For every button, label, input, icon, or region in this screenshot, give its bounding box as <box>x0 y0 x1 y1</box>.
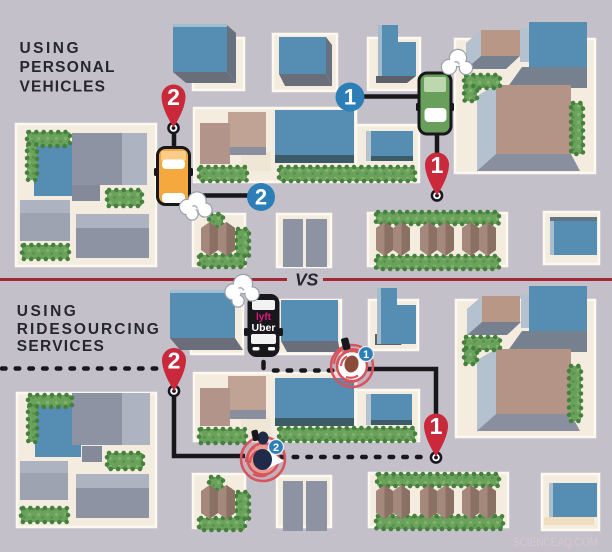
svg-text:VEHICLES: VEHICLES <box>20 79 106 96</box>
svg-text:lyft: lyft <box>256 312 272 323</box>
svg-text:1: 1 <box>363 349 369 361</box>
svg-text:2: 2 <box>255 185 267 210</box>
svg-text:1: 1 <box>430 413 443 439</box>
svg-text:USING: USING <box>20 40 79 57</box>
svg-text:1: 1 <box>431 152 444 178</box>
svg-text:Uber: Uber <box>252 323 276 334</box>
svg-text:PERSONAL: PERSONAL <box>20 59 115 76</box>
svg-text:SERVICES: SERVICES <box>17 338 104 355</box>
svg-text:SCIENCEAQ.COM: SCIENCEAQ.COM <box>513 537 598 549</box>
svg-text:VS: VS <box>295 270 319 290</box>
svg-text:2: 2 <box>273 442 279 454</box>
svg-text:2: 2 <box>168 348 181 374</box>
svg-text:RIDESOURCING: RIDESOURCING <box>17 321 159 338</box>
svg-text:2: 2 <box>167 84 180 110</box>
svg-text:USING: USING <box>17 303 76 320</box>
svg-text:1: 1 <box>344 85 356 110</box>
